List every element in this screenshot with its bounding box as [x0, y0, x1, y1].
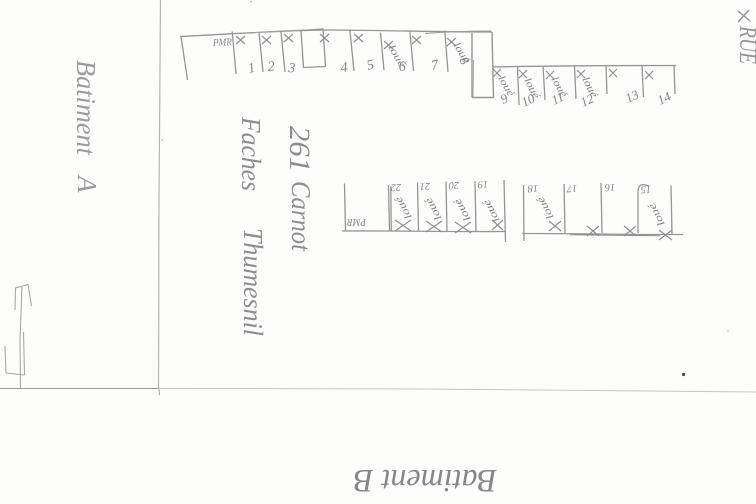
svg-text:A: A — [72, 174, 102, 193]
svg-text:RUE: RUE — [734, 25, 756, 64]
svg-text:PMR: PMR — [346, 216, 366, 227]
svg-text:22: 22 — [390, 181, 402, 193]
svg-text:21: 21 — [419, 180, 430, 192]
svg-text:Batiment: Batiment — [71, 60, 101, 156]
svg-text:Thumesnil: Thumesnil — [238, 228, 268, 336]
svg-text:3: 3 — [287, 61, 296, 77]
svg-text:15: 15 — [640, 183, 651, 195]
svg-text:20: 20 — [448, 179, 460, 191]
svg-text:19: 19 — [477, 178, 489, 190]
svg-text:Carnot: Carnot — [286, 181, 316, 252]
svg-text:2: 2 — [267, 59, 275, 75]
svg-text:6: 6 — [398, 60, 406, 75]
svg-text:18: 18 — [527, 182, 539, 194]
svg-text:17: 17 — [566, 182, 578, 194]
svg-text:16: 16 — [604, 181, 616, 193]
svg-text:PMR: PMR — [212, 37, 233, 49]
svg-text:261: 261 — [283, 126, 316, 172]
svg-text:Batiment B: Batiment B — [354, 462, 497, 498]
svg-text:Faches: Faches — [236, 116, 266, 191]
